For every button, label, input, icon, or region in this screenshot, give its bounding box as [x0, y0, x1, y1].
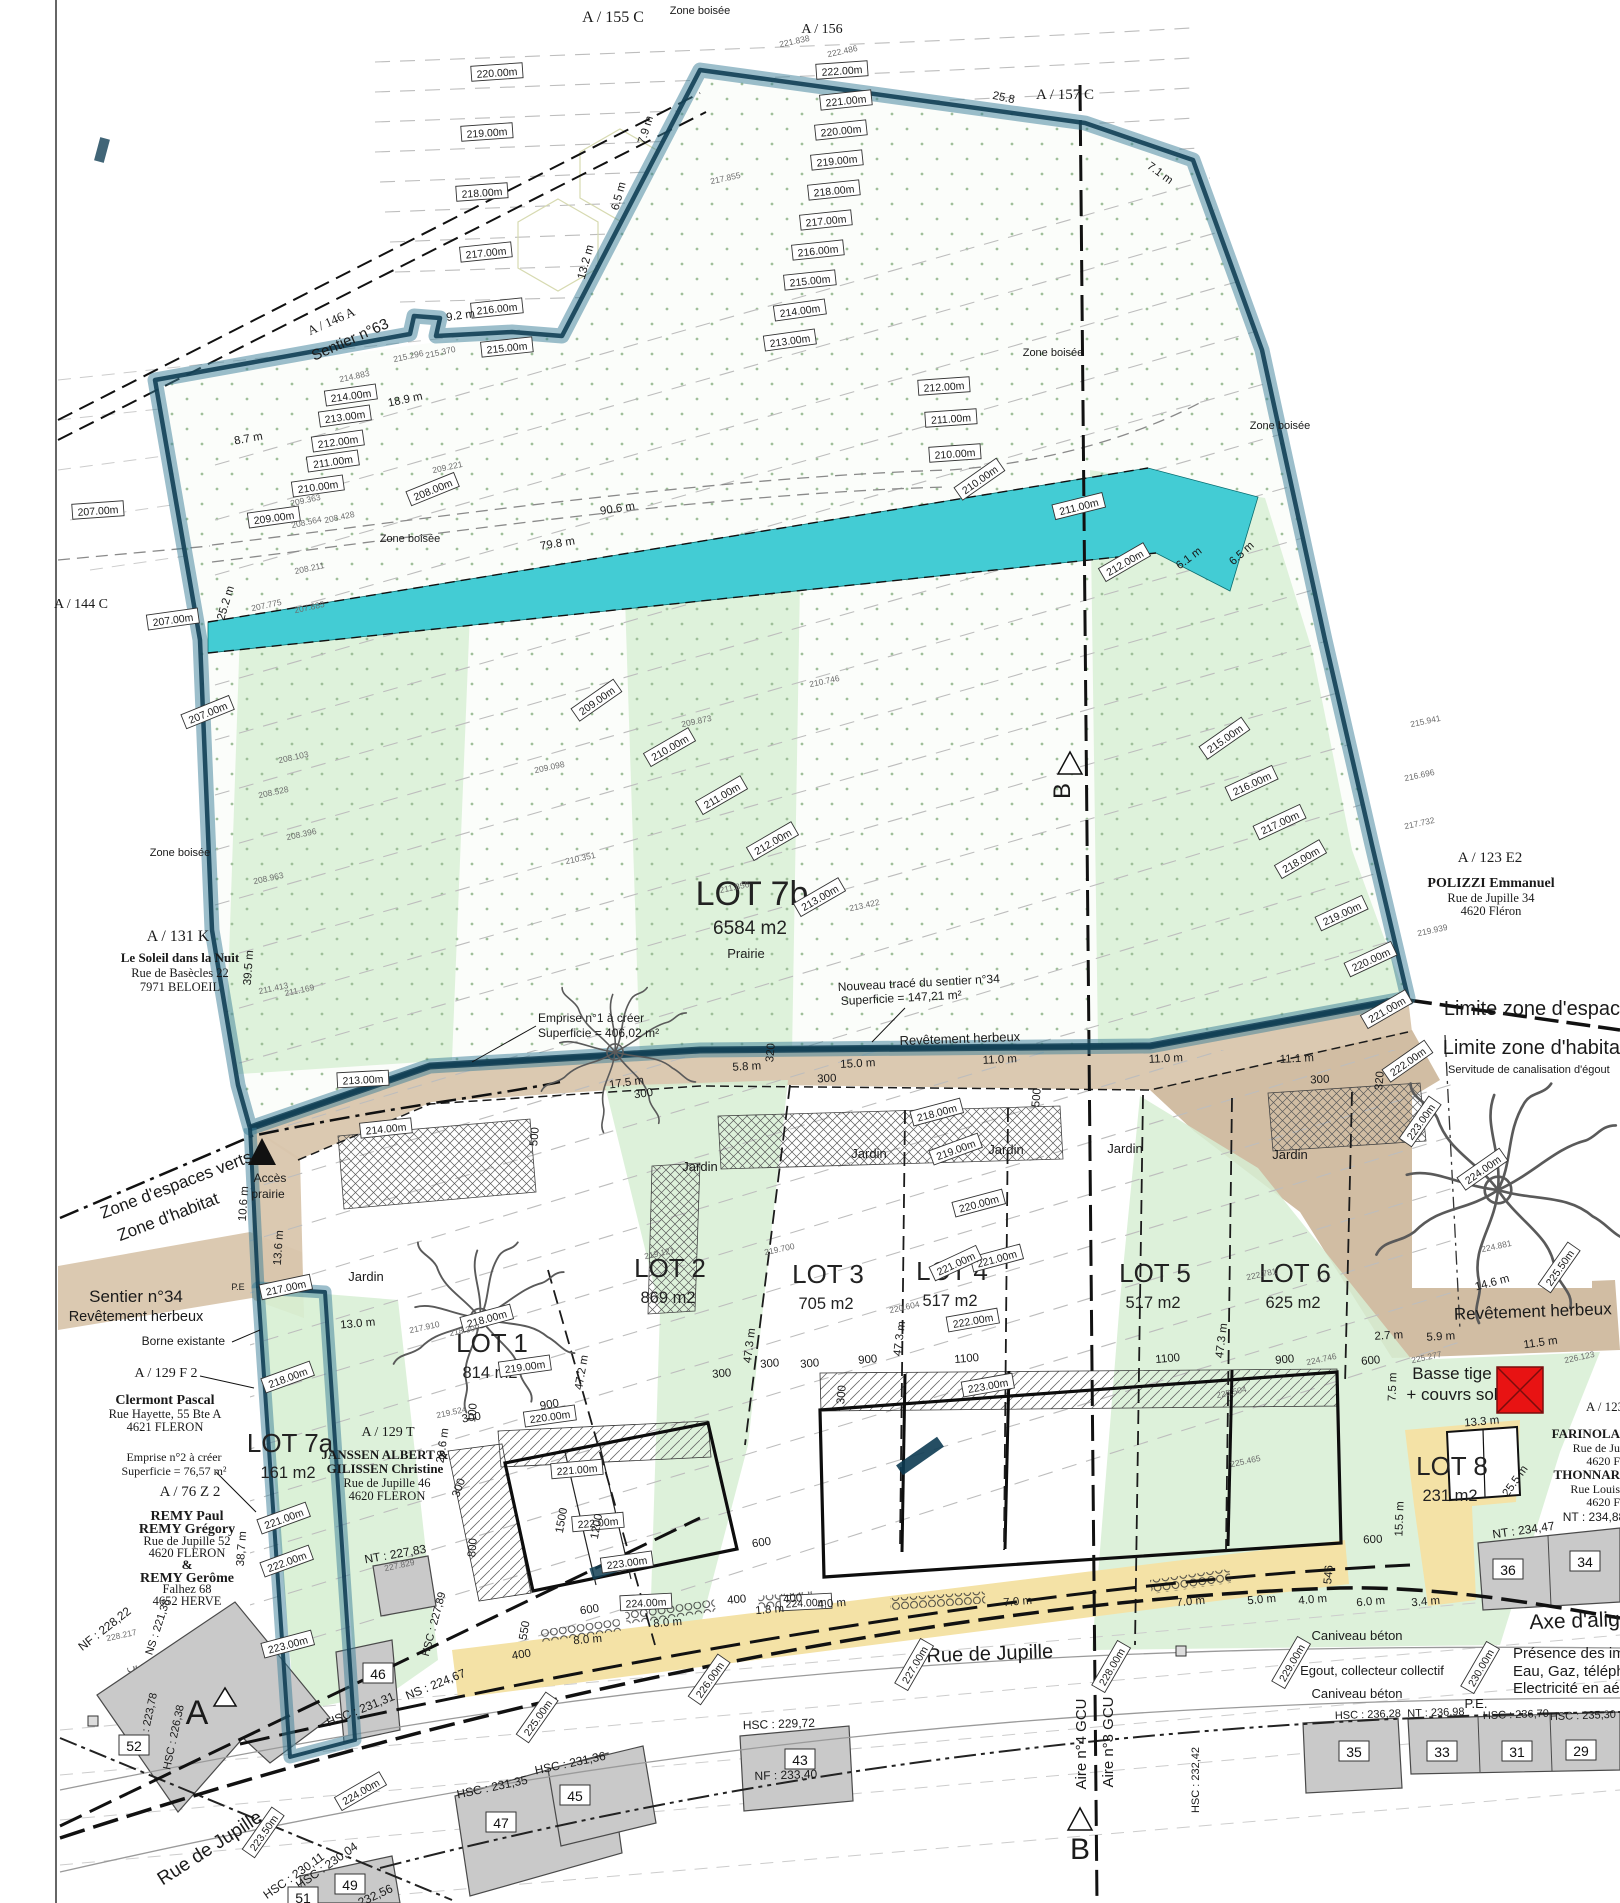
house-number-text: 51 — [295, 1890, 311, 1903]
lot-area-label: 517 m2 — [1125, 1294, 1180, 1312]
map-label: Sentier n°34 — [89, 1287, 183, 1306]
dimension-label: 11.1 m — [1279, 1052, 1314, 1066]
section-B-triangle-bottom — [1068, 1808, 1092, 1830]
dimension-label: 10.6 m — [237, 1186, 251, 1222]
map-label: A / 123 — [1586, 1399, 1620, 1414]
emprise2-leader — [216, 1472, 256, 1512]
dimension-label: 400 — [783, 1592, 803, 1606]
map-label: HSC : 229,72 — [743, 1716, 816, 1733]
house-number: 36 — [1493, 1559, 1523, 1579]
contour-label: 219.00m — [461, 123, 513, 142]
dimension-label: 400 — [727, 1593, 747, 1607]
map-label: Eau, Gaz, téléphone, é — [1513, 1663, 1620, 1680]
map-label: Revêtement herbeux — [69, 1309, 204, 1325]
dimension-label: 320 — [764, 1043, 778, 1063]
house-number: 47 — [486, 1812, 516, 1832]
map-label: A / 144 C — [54, 597, 108, 612]
house-number: 52 — [119, 1735, 149, 1755]
lot-name-label: LOT 7a — [247, 1428, 334, 1458]
dimension-label: 3.4 m — [1411, 1595, 1441, 1609]
map-label: JANSSEN ALBERT & — [321, 1447, 448, 1462]
dimension-label: 600 — [1363, 1534, 1383, 1547]
dimension-label: 1100 — [1155, 1352, 1181, 1366]
dimension-label: 100 — [466, 1403, 480, 1423]
map-label: 4620 F — [1586, 1454, 1620, 1468]
dimension-label: 5.0 m — [1247, 1593, 1277, 1607]
dimension-label: 300 — [760, 1357, 780, 1371]
map-label: NT : 236,98 — [1407, 1706, 1465, 1720]
map-label: 4620 Fléron — [1461, 904, 1523, 918]
contour-label: 222.00m — [816, 61, 868, 80]
house-number-text: 49 — [342, 1877, 358, 1893]
dimension-label: 800 — [466, 1538, 480, 1558]
dimension-label: 47.3 m — [892, 1320, 908, 1356]
map-label: Basse tige — [1412, 1364, 1491, 1383]
contour-label: 230.00m — [1461, 1641, 1500, 1693]
map-label: A / 131 K — [147, 928, 210, 945]
spot-elevation: 215.941 — [1409, 713, 1441, 729]
map-label: Electricité en aérien — [1513, 1680, 1620, 1697]
map-label: Zone boisée — [1250, 420, 1311, 432]
house-number: 34 — [1570, 1551, 1600, 1571]
lot-area-label: 6584 m2 — [713, 918, 787, 939]
contour-label: 220.00m — [471, 63, 523, 82]
map-label: 4620 FLERON — [349, 1489, 426, 1503]
house-number-text: 52 — [126, 1738, 142, 1754]
map-label: Egout, collecteur collectif — [1300, 1663, 1444, 1678]
house-number-text: 35 — [1346, 1744, 1362, 1760]
house-number: 43 — [785, 1749, 815, 1769]
dimension-label: 900 — [1275, 1353, 1295, 1367]
dimension-label: 320 — [1373, 1071, 1387, 1091]
dimension-label: 15.0 m — [840, 1057, 876, 1071]
dimension-label: 500 — [528, 1127, 542, 1147]
map-label: P.E. — [1465, 1696, 1488, 1711]
boundary-tick — [94, 137, 110, 163]
contour-label: 217.00m — [460, 242, 513, 262]
map-label: Zone boisée — [380, 533, 441, 545]
house-number-text: 29 — [1573, 1743, 1589, 1759]
dimension-label: 300 — [817, 1073, 837, 1086]
house-number: 51 — [288, 1887, 318, 1903]
dimension-label: 39.5 m — [242, 950, 256, 986]
map-label: GILISSEN Christine — [327, 1461, 444, 1476]
house-number-text: 45 — [567, 1788, 583, 1804]
dimension-label: 20.6 m — [435, 1427, 452, 1463]
contour-label: 211.00m — [925, 409, 977, 428]
dimension-label: 546 — [1322, 1565, 1336, 1585]
map-label: Limite zone d'habita — [1443, 1037, 1620, 1059]
dimension-label: 5.8 m — [732, 1060, 761, 1073]
house-number: 45 — [560, 1785, 590, 1805]
dimension-label: 300 — [835, 1385, 849, 1405]
map-label: Borne existante — [142, 1334, 226, 1348]
dimension-label: 7.9 m — [636, 115, 656, 146]
dimension-label: 11.0 m — [982, 1053, 1017, 1067]
dimension-label: 550 — [517, 1620, 532, 1641]
cadastral-plan-drawing: A / 155 CZone boiséeA / 156A / 157 CA / … — [0, 0, 1620, 1903]
contour-label-text: 221.00m — [556, 1463, 598, 1479]
contour-label: 207.00m — [72, 501, 124, 520]
dimension-label: 15.5 m — [1393, 1501, 1406, 1537]
dimension-label: 8.0 m — [653, 1616, 683, 1630]
contour-label: 216.00m — [471, 298, 524, 318]
map-label: Axe d'alig — [1529, 1608, 1620, 1634]
house-number: 46 — [363, 1663, 393, 1683]
lot-area-label: 231 m2 — [1422, 1487, 1477, 1505]
house-number-text: 43 — [792, 1752, 808, 1768]
spot-elevation: 216.696 — [1403, 767, 1435, 783]
house-number: 49 — [335, 1874, 365, 1894]
dimension-label: 11.0 m — [1148, 1052, 1183, 1066]
house-number: 33 — [1427, 1741, 1457, 1761]
cadastral-plan-page: A / 155 CZone boiséeA / 156A / 157 CA / … — [0, 0, 1620, 1903]
dimension-label: 6.0 m — [1356, 1595, 1386, 1609]
map-label: A — [186, 1694, 209, 1732]
map-label: Servitude de canalisation d'égout — [1448, 1064, 1610, 1076]
house-number: 29 — [1566, 1740, 1596, 1760]
map-label: Clermont Pascal — [115, 1393, 214, 1408]
map-label: 4620 F — [1586, 1495, 1620, 1509]
house-number-text: 34 — [1577, 1554, 1593, 1570]
dimension-label: 4.0 m — [1298, 1593, 1328, 1607]
contour-label: 213.00m — [337, 1070, 389, 1088]
map-label: A / 129 T — [361, 1425, 414, 1440]
dimension-label: 1500 — [554, 1507, 570, 1534]
dimension-label: 900 — [858, 1353, 878, 1367]
spot-elevation: 221.838 — [778, 33, 810, 49]
map-label: Caniveau béton — [1311, 1628, 1402, 1643]
lot-area-label: 869 m2 — [640, 1289, 695, 1307]
map-label: Aire n°3 GCU — [1100, 1696, 1117, 1787]
dimension-label: 47.2 m — [573, 1354, 591, 1391]
map-label: Rue de Jupille 46 — [343, 1476, 430, 1490]
house-number-text: 47 — [493, 1815, 509, 1831]
map-label: Superficie = 406,02 m² — [538, 1026, 659, 1040]
parcel-leader — [200, 1376, 254, 1388]
dimension-label: 13.6 m — [272, 1230, 286, 1266]
map-label: FARINOLA — [1552, 1426, 1620, 1441]
dimension-label: 600 — [751, 1536, 772, 1551]
contour-label: 225.00m — [516, 1692, 558, 1743]
map-label: Rue Hayette, 55 Bte A — [109, 1407, 222, 1421]
spot-elevation: 219.939 — [1416, 922, 1448, 938]
map-label: Aire n°4 GCU — [1073, 1698, 1090, 1789]
map-label: Jardin — [988, 1142, 1023, 1157]
map-label: Emprise n°2 à créer — [126, 1450, 221, 1464]
map-label: P.E — [231, 1282, 244, 1292]
map-label: Emprise n°1 à créer — [538, 1011, 644, 1025]
map-label: Zone boisée — [150, 847, 211, 859]
dimension-label: 9.2 m — [446, 308, 476, 324]
house-number-text: 46 — [370, 1666, 386, 1682]
map-label: Accès — [254, 1171, 287, 1185]
spot-elevation: 220.604 — [888, 1299, 920, 1315]
house-number-text: 36 — [1500, 1562, 1516, 1578]
dimension-label: 600 — [1361, 1354, 1381, 1368]
map-label: Limite zone d'espac — [1444, 998, 1620, 1020]
dimension-label: 4.0 m — [817, 1597, 847, 1611]
map-label: 7971 BELOEIL — [140, 980, 220, 994]
map-label: Jardin — [851, 1146, 886, 1161]
lot-area-label: 625 m2 — [1265, 1294, 1320, 1312]
map-label: Rue de Jupille — [926, 1641, 1053, 1667]
map-label: B — [1070, 1833, 1090, 1866]
map-label: HSC : 236,70 — [1483, 1708, 1549, 1722]
lot-name-label: LOT 7b — [696, 875, 809, 913]
house-number-text: 31 — [1509, 1744, 1525, 1760]
map-label: A / 157 C — [1036, 87, 1094, 103]
map-label: + couvrs sol — [1406, 1385, 1497, 1404]
dimension-label: 600 — [579, 1603, 600, 1618]
spot-elevation: 217.732 — [1403, 815, 1435, 831]
contour-label: 223.00m — [600, 1551, 653, 1573]
contour-label: 224.00m — [620, 1593, 672, 1611]
map-label: Jardin — [1272, 1147, 1307, 1162]
map-label: HSC : 232,42 — [1190, 1747, 1202, 1813]
map-label: Rue de Ju — [1573, 1441, 1620, 1455]
lot-area-label: 705 m2 — [798, 1295, 853, 1313]
dimension-label: 300 — [1310, 1074, 1330, 1087]
map-label: A / 155 C — [582, 9, 644, 26]
dimension-label: 2.7 m — [1374, 1329, 1403, 1342]
map-label: HSC : 235,30 — [1550, 1709, 1616, 1723]
map-label: NT : 234,88 — [1563, 1510, 1620, 1524]
map-label: Rue Louis — [1570, 1482, 1620, 1496]
contour-label: 212.00m — [918, 377, 970, 396]
spot-elevation: 217.910 — [408, 1319, 440, 1335]
dimension-label: 1100 — [954, 1352, 980, 1366]
map-label: Rue de Jupille 34 — [1447, 891, 1535, 905]
map-label: Caniveau béton — [1311, 1686, 1402, 1701]
dimension-label: 500 — [1030, 1088, 1044, 1108]
map-label: HSC : 236,28 — [1335, 1708, 1401, 1722]
map-label: Zone boisée — [1023, 347, 1084, 359]
utility-box — [88, 1716, 98, 1726]
map-label: & — [182, 1557, 193, 1572]
map-label: 4621 FLERON — [127, 1420, 204, 1434]
dimension-label: 300 — [712, 1367, 732, 1381]
dimension-label: 7.0 m — [1003, 1595, 1033, 1609]
utility-box — [1176, 1646, 1186, 1656]
lot-name-label: LOT 3 — [792, 1259, 864, 1289]
map-label: Superficie = 76,57 m² — [121, 1464, 226, 1478]
map-label: Jardin — [682, 1159, 717, 1174]
lot-name-label: LOT 8 — [1416, 1451, 1488, 1481]
dimension-label: 7.0 m — [1176, 1595, 1206, 1609]
contour-label: 218.00m — [456, 183, 508, 202]
map-label: Jardin — [348, 1269, 383, 1284]
map-label: A / 129 F 2 — [134, 1366, 197, 1381]
map-label: Le Soleil dans la Nuit — [121, 950, 240, 965]
lot-area-label: 161 m2 — [260, 1464, 315, 1482]
dimension-label: 38,7 m — [235, 1531, 249, 1567]
dimension-label: 7.5 m — [1387, 1372, 1400, 1401]
contour-label-text: 224.00m — [625, 1596, 667, 1610]
contour-label: 220.00m — [952, 1189, 1006, 1217]
lot-note-label: Prairie — [727, 946, 765, 961]
contour-label: 219.00m — [498, 1355, 551, 1377]
map-label: Présence des impétran — [1513, 1645, 1620, 1662]
dimension-label: 1.8 m — [755, 1603, 785, 1617]
lot-area-label: 517 m2 — [922, 1292, 977, 1310]
contour-label-text: 213.00m — [342, 1073, 384, 1087]
lot-name-label: LOT 5 — [1119, 1258, 1191, 1288]
dimension-label: 8.0 m — [573, 1633, 603, 1647]
map-label: prairie — [251, 1187, 285, 1201]
map-label: Jardin — [1107, 1141, 1142, 1156]
dimension-label: 300 — [800, 1357, 820, 1371]
map-label: POLIZZI Emmanuel — [1427, 876, 1554, 891]
map-label: B — [1049, 783, 1076, 799]
map-label: A / 76 Z 2 — [160, 1484, 221, 1500]
map-label: A / 123 E2 — [1458, 850, 1523, 866]
house-number: 31 — [1502, 1741, 1532, 1761]
map-label: Zone boisée — [670, 5, 731, 17]
contour-label: 210.00m — [929, 444, 981, 463]
dimension-label: 5.9 m — [1426, 1330, 1455, 1343]
house-number-text: 33 — [1434, 1744, 1450, 1760]
map-label: Rue de Basècles 22 — [131, 966, 229, 980]
map-label: THONNAR — [1554, 1467, 1620, 1482]
house-number: 35 — [1339, 1741, 1369, 1761]
